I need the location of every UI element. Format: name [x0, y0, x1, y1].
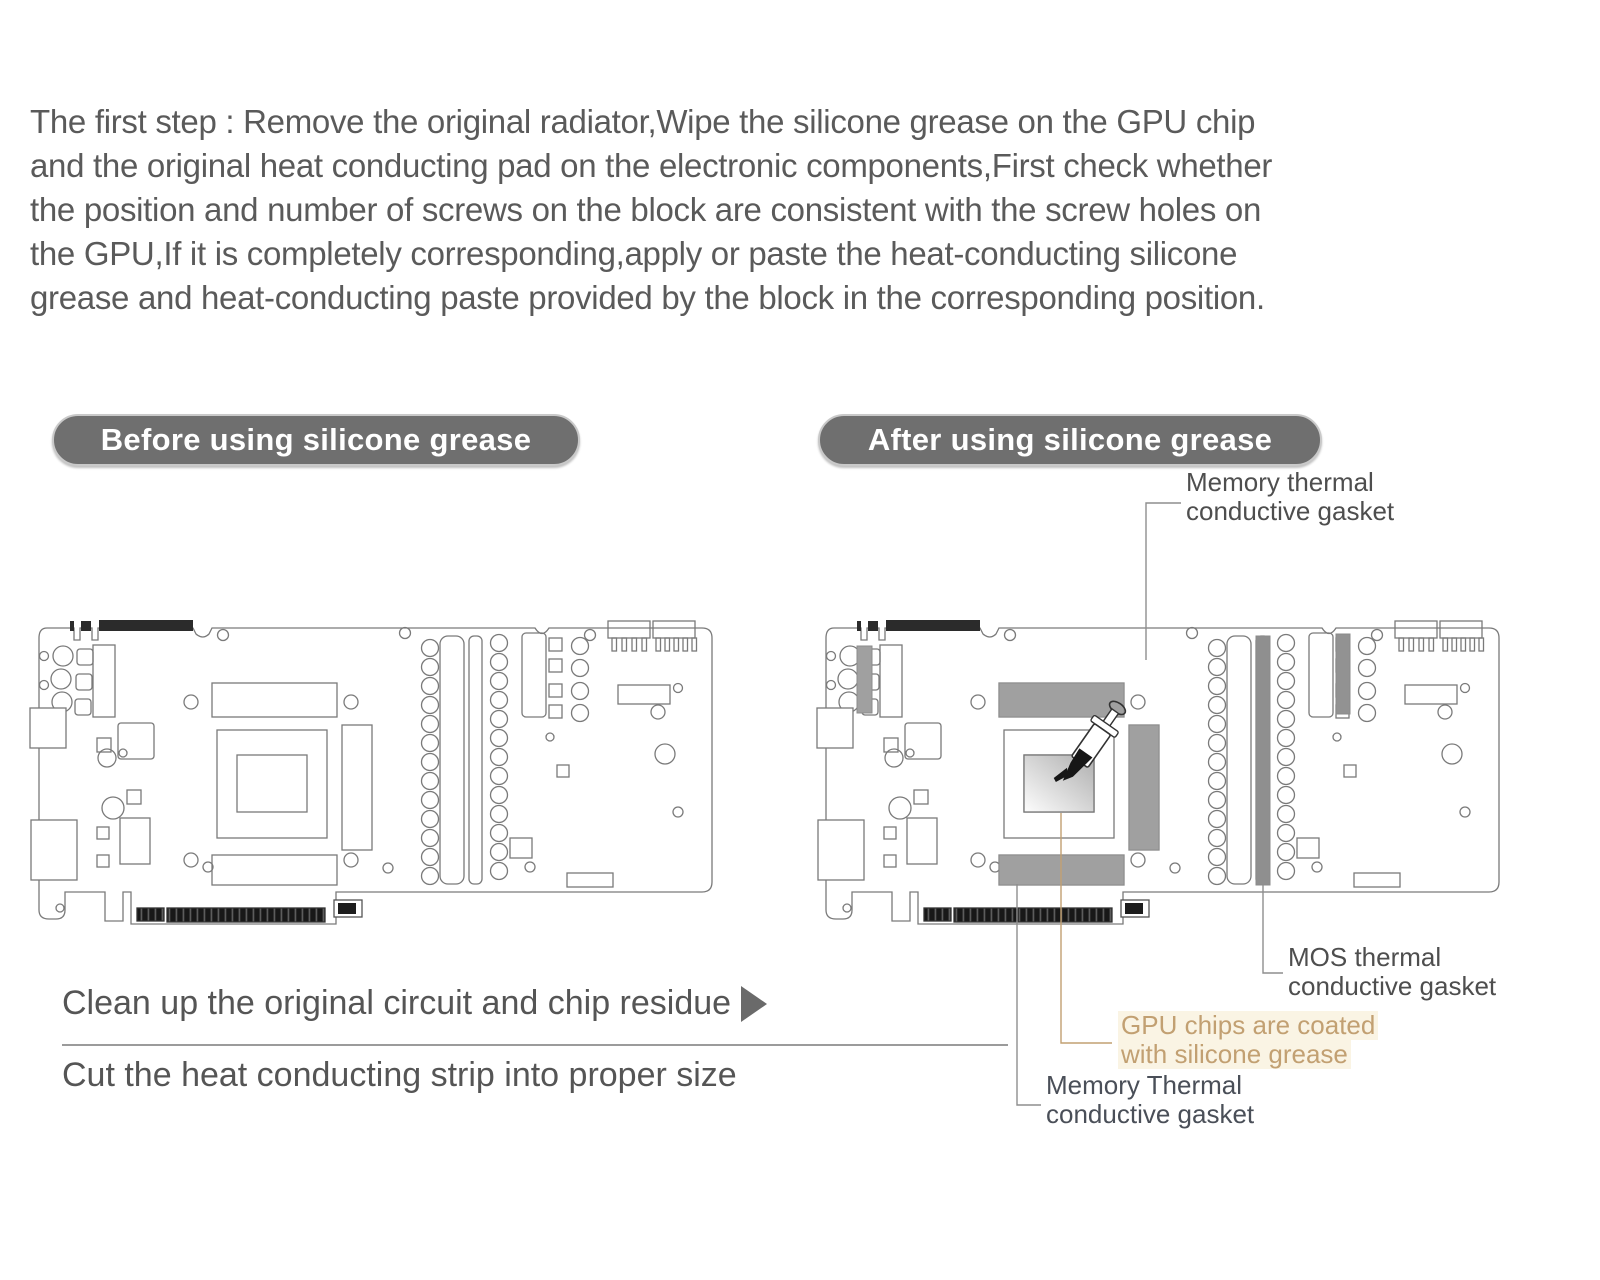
annotation-line: Memory Thermal	[1046, 1071, 1254, 1100]
mos-thermal-pad-strip	[1256, 636, 1270, 885]
memory-thermal-pad-right	[1129, 725, 1159, 850]
annotation-memory-thermal-top: Memory thermal conductive gasket	[1186, 468, 1394, 526]
annotation-mos-thermal: MOS thermal conductive gasket	[1288, 943, 1496, 1001]
leader-mos	[1263, 885, 1283, 973]
intro-line: the GPU,If it is completely correspondin…	[30, 232, 1520, 276]
annotation-line: GPU chips are coated	[1118, 1011, 1378, 1040]
mos-thermal-pad-short	[1336, 634, 1350, 714]
annotation-line: with silicone grease	[1118, 1040, 1351, 1069]
memory-thermal-pad-top	[999, 683, 1124, 717]
pcb-diagram-before	[30, 620, 712, 924]
intro-line: grease and heat-conducting paste provide…	[30, 276, 1520, 320]
footer-divider	[62, 1044, 1008, 1046]
annotation-gpu-grease: GPU chips are coated with silicone greas…	[1118, 1011, 1600, 1069]
instruction-page: The first step : Remove the original rad…	[0, 0, 1600, 1280]
annotation-line: conductive gasket	[1186, 497, 1394, 526]
intro-line: The first step : Remove the original rad…	[30, 100, 1520, 144]
after-section-label: After using silicone grease	[818, 414, 1322, 466]
annotation-line: Memory thermal	[1186, 468, 1394, 497]
intro-line: the position and number of screws on the…	[30, 188, 1520, 232]
annotation-memory-thermal-bottom: Memory Thermal conductive gasket	[1046, 1071, 1254, 1129]
footer-caption-cut: Cut the heat conducting strip into prope…	[62, 1056, 737, 1095]
before-section-label: Before using silicone grease	[52, 414, 580, 466]
annotation-line: conductive gasket	[1288, 972, 1496, 1001]
annotation-line: conductive gasket	[1046, 1100, 1254, 1129]
intro-paragraph: The first step : Remove the original rad…	[30, 100, 1520, 320]
footer-caption-clean: Clean up the original circuit and chip r…	[62, 984, 731, 1023]
play-arrow-icon	[741, 986, 767, 1022]
intro-line: and the original heat conducting pad on …	[30, 144, 1520, 188]
annotation-line: MOS thermal	[1288, 943, 1496, 972]
thermal-pad-left-strip	[857, 646, 872, 713]
footer-captions: Clean up the original circuit and chip r…	[62, 984, 767, 1023]
